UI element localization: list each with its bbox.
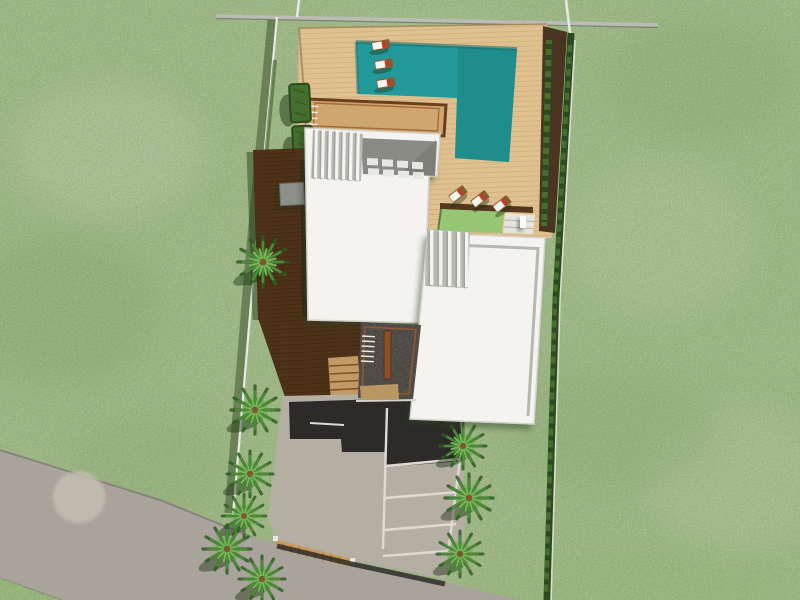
- courtyard-wood-landing: [360, 384, 399, 400]
- site-plan-render: [0, 0, 800, 600]
- stone-path: [503, 213, 535, 234]
- rooftop-unit: [279, 182, 304, 205]
- skylight-roof: [361, 138, 437, 179]
- lawn-patch-area: [438, 203, 535, 234]
- pergola-slats-lower: [425, 229, 470, 288]
- lawn-patch: [438, 209, 504, 233]
- courtyard-south-wall: [356, 400, 416, 401]
- courtyard-planter: [384, 331, 391, 379]
- pergola-slats-upper: [311, 129, 363, 181]
- site-plan-canvas: [0, 0, 800, 600]
- outdoor-shower: [520, 216, 526, 228]
- gate-post-left: [273, 536, 278, 541]
- pool-inner-shadow-left: [356, 42, 358, 94]
- manhole: [53, 471, 105, 523]
- pool-water-deep: [455, 46, 517, 162]
